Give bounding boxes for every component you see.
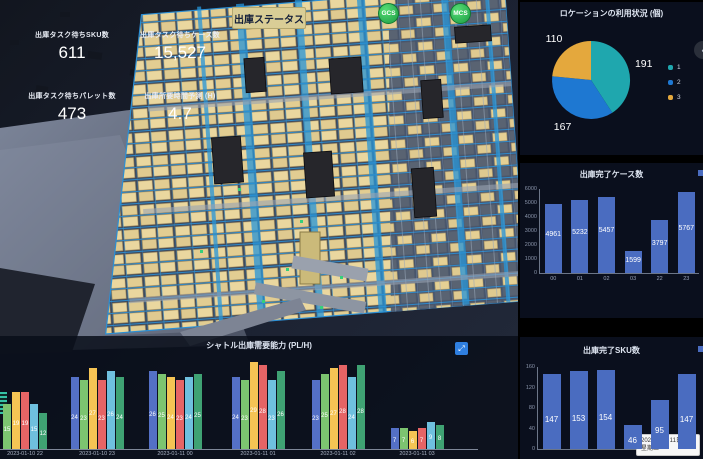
y-tick-label: 1000 (521, 256, 537, 262)
bar[interactable]: 3797 (651, 220, 668, 273)
bar-value: 5232 (571, 229, 588, 236)
bar-value: 28 (339, 409, 346, 415)
bar[interactable]: 28 (259, 365, 267, 449)
bar[interactable]: 8 (436, 425, 444, 449)
expand-icon[interactable]: ⤢ (455, 342, 468, 355)
legend-item[interactable]: 2 (668, 79, 681, 86)
bar[interactable]: 26 (277, 371, 285, 449)
pie-slice-value: 110 (546, 33, 563, 45)
bar[interactable]: 7 (418, 428, 426, 449)
bar[interactable]: 153 (570, 371, 588, 449)
bar[interactable]: 5457 (598, 197, 615, 273)
bar-value: 26 (277, 412, 284, 418)
x-category-label: 2023-01-11 03 (399, 451, 434, 457)
bar[interactable]: 7 (400, 428, 408, 449)
bar[interactable]: 15 (3, 404, 11, 449)
shuttle-capacity-chart[interactable]: シャトル出庫需要能力 (PL/H) ⤢ 15191915122023-01-10… (0, 336, 518, 459)
x-category-label: 01 (567, 276, 594, 282)
bar-value: 25 (194, 413, 201, 419)
bar-group[interactable]: 242327232624 (71, 336, 125, 449)
bar[interactable]: 15 (30, 404, 38, 449)
bar-value: 7 (402, 438, 405, 444)
pie-legend[interactable]: 123 (668, 64, 681, 109)
bar[interactable]: 24 (116, 377, 124, 449)
y-tick-label: 5000 (521, 200, 537, 206)
x-category-label: 2023-01-11 02 (320, 451, 355, 457)
mcs-status-badge[interactable]: MCS (450, 3, 471, 24)
bar-value: 15 (4, 427, 11, 433)
x-category-label: 02 (593, 276, 620, 282)
kpi-waiting-cases: 出庫タスク待ちケース数 15,527 (120, 30, 240, 63)
bar[interactable]: 28 (357, 365, 365, 449)
y-axis (539, 189, 540, 273)
kpi-value: 611 (12, 43, 132, 63)
bar-value: 29 (250, 408, 257, 414)
status-button[interactable]: 出庫ステータス (232, 7, 306, 29)
bar-value: 23 (241, 416, 248, 422)
y-tick-label: 160 (519, 364, 535, 370)
bar-value: 26 (107, 412, 114, 418)
y-tick-label: 3000 (521, 228, 537, 234)
legend-marker-cut (698, 170, 703, 176)
x-category-label: 2023-01-11 01 (240, 451, 275, 457)
bar[interactable]: 5232 (571, 200, 588, 273)
kpi-value: 15,527 (120, 43, 240, 63)
bar[interactable]: 26 (107, 371, 115, 449)
bar[interactable]: 27 (89, 368, 97, 449)
bar-group[interactable]: 1519191512 (3, 336, 48, 449)
3d-warehouse-view[interactable]: 出庫ステータス GCS MCS 出庫タスク待ちSKU数 611 出庫タスク待ちケ… (0, 0, 518, 459)
bar-value: 5767 (678, 225, 695, 232)
bar-value: 154 (597, 413, 615, 422)
x-category-label: 22 (646, 276, 673, 282)
bar-value: 24 (167, 415, 174, 421)
bar[interactable]: 23 (241, 380, 249, 449)
bar-value: 46 (624, 436, 642, 445)
legend-dot (668, 95, 673, 100)
kpi-label: 出庫所要時間予測 (H) (120, 91, 240, 101)
bar[interactable]: 26 (149, 371, 157, 449)
bar[interactable]: 154 (597, 370, 615, 449)
bar[interactable]: 29 (250, 362, 258, 449)
bar-value: 24 (116, 415, 123, 421)
kpi-value: 4.7 (120, 104, 240, 124)
bar-value: 4961 (545, 231, 562, 238)
bar[interactable]: 23 (176, 380, 184, 449)
bar[interactable]: 23 (268, 380, 276, 449)
bar-value: 23 (312, 416, 319, 422)
y-tick-label: 2000 (521, 242, 537, 248)
bar[interactable]: 27 (330, 368, 338, 449)
kpi-waiting-pallets: 出庫タスク待ちパレット数 473 (12, 91, 132, 124)
bar-value: 15 (31, 427, 38, 433)
x-category-label: 23 (673, 276, 700, 282)
legend-marker-cut (698, 346, 703, 352)
bar[interactable]: 19 (21, 392, 29, 449)
bar-value: 5457 (598, 227, 615, 234)
bar-value: 24 (185, 415, 192, 421)
legend-item[interactable]: 1 (668, 64, 681, 71)
bar[interactable]: 23 (312, 380, 320, 449)
bar-value: 9 (429, 435, 432, 441)
bar[interactable]: 5767 (678, 192, 695, 273)
bar[interactable]: 23 (98, 380, 106, 449)
bar-value: 23 (80, 416, 87, 422)
bar[interactable]: 6 (409, 431, 417, 449)
bar-value: 23 (176, 416, 183, 422)
gcs-status-badge[interactable]: GCS (378, 3, 399, 24)
pie-slice-value: 167 (554, 121, 572, 133)
kpi-label: 出庫タスク待ちパレット数 (12, 91, 132, 101)
bar[interactable]: 23 (80, 380, 88, 449)
bar-value: 7 (420, 438, 423, 444)
bar-value: 147 (678, 415, 696, 424)
kpi-label: 出庫タスク待ちSKU数 (12, 30, 132, 40)
completed-cases-panel[interactable]: 出庫完了ケース数 0100020003000400050006000496100… (520, 163, 703, 318)
bar-group[interactable]: 232527282428 (312, 336, 366, 449)
bar-value: 23 (268, 416, 275, 422)
bar-value: 6 (411, 439, 414, 445)
warehouse-dashboard: 出庫ステータス GCS MCS 出庫タスク待ちSKU数 611 出庫タスク待ちケ… (0, 0, 703, 459)
x-axis (0, 449, 478, 450)
bar[interactable]: 19 (12, 392, 20, 449)
y-tick-label: 6000 (521, 186, 537, 192)
bar-value: 26 (149, 412, 156, 418)
bar[interactable]: 25 (194, 374, 202, 449)
bar[interactable]: 24 (348, 377, 356, 449)
y-tick-label: 120 (519, 385, 535, 391)
kpi-waiting-sku: 出庫タスク待ちSKU数 611 (12, 30, 132, 63)
bar-value: 28 (259, 409, 266, 415)
bar-value: 8 (438, 436, 441, 442)
bar-value: 95 (651, 426, 669, 435)
bar[interactable]: 28 (339, 365, 347, 449)
bar-value: 147 (543, 415, 561, 424)
bar-value: 23 (98, 416, 105, 422)
bar-value: 7 (393, 438, 396, 444)
bar-value: 25 (321, 413, 328, 419)
x-category-label: 2023-01-11 00 (157, 451, 192, 457)
chart-title: 出庫完了ケース数 (520, 169, 703, 180)
legend-dot (668, 80, 673, 85)
legend-dot (668, 65, 673, 70)
chart-title: 出庫完了SKU数 (520, 345, 703, 356)
bar-value: 28 (357, 409, 364, 415)
x-category-label: 2023-01-10 23 (79, 451, 115, 457)
legend-item[interactable]: 3 (668, 94, 681, 101)
bar[interactable]: 25 (158, 374, 166, 449)
bar[interactable]: 12 (39, 413, 47, 449)
kpi-label: 出庫タスク待ちケース数 (120, 30, 240, 40)
bar-value: 24 (232, 415, 239, 421)
bar[interactable]: 24 (185, 377, 193, 449)
bar-value: 153 (570, 414, 588, 423)
bar[interactable]: 9 (427, 422, 435, 449)
bar[interactable]: 147 (543, 374, 561, 449)
x-axis (539, 273, 699, 274)
kpi-value: 473 (12, 104, 132, 124)
bar-value: 25 (158, 413, 165, 419)
bar[interactable]: 95 (651, 400, 669, 449)
bar-value: 19 (22, 421, 29, 427)
bar[interactable]: 1599 (625, 251, 642, 273)
y-tick-label: 0 (521, 270, 537, 276)
bar-value: 12 (40, 431, 47, 437)
bar[interactable]: 24 (71, 377, 79, 449)
bar-value: 19 (13, 421, 20, 427)
y-tick-label: 0 (519, 446, 535, 452)
kpi-time-forecast: 出庫所要時間予測 (H) 4.7 (120, 91, 240, 124)
bar-value: 1599 (625, 257, 642, 264)
y-tick-label: 80 (519, 405, 535, 411)
completed-sku-panel[interactable]: 出庫完了SKU数 2023年1月11日 星期三 0408012016014715… (520, 337, 703, 459)
bar[interactable]: 7 (391, 428, 399, 449)
bar[interactable]: 46 (624, 425, 642, 449)
bar-group[interactable]: 242329282326 (232, 336, 286, 449)
pie-slice-value: 191 (635, 58, 653, 70)
bar[interactable]: 24 (232, 377, 240, 449)
y-tick-label: 40 (519, 426, 535, 432)
bar[interactable]: 147 (678, 374, 696, 449)
bar-value: 27 (330, 411, 337, 417)
bar[interactable]: 24 (167, 377, 175, 449)
bar-value: 27 (89, 411, 96, 417)
x-category-label: 03 (620, 276, 647, 282)
location-usage-panel[interactable]: ロケーションの利用状況 (個) 123 191167110 (520, 2, 703, 155)
bar-group[interactable]: 262524232425 (149, 336, 203, 449)
bar-group[interactable]: 776798 (391, 336, 445, 449)
bar-value: 24 (348, 415, 355, 421)
bar-value: 3797 (651, 240, 668, 247)
x-category-label: 00 (540, 276, 567, 282)
y-tick-label: 4000 (521, 214, 537, 220)
bar[interactable]: 25 (321, 374, 329, 449)
x-category-label: 2023-01-10 22 (7, 451, 43, 457)
bar[interactable]: 4961 (545, 204, 562, 273)
bar-value: 24 (71, 415, 78, 421)
y-axis (537, 367, 538, 449)
